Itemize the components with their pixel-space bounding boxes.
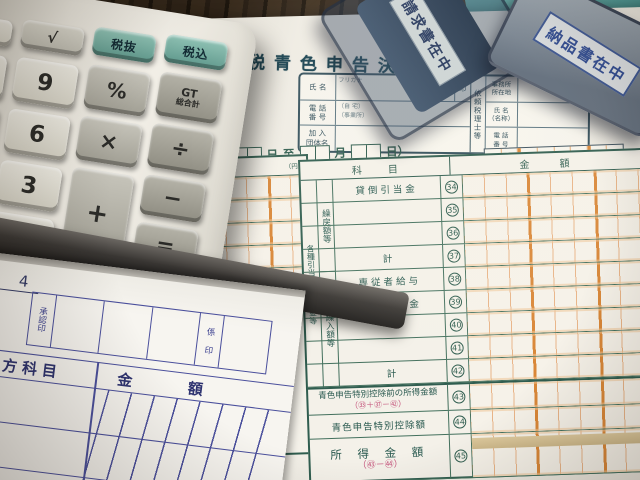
amount-grid bbox=[472, 427, 640, 477]
row-formula: （㊸－㊹） bbox=[358, 459, 403, 471]
row-number-cell: 38 bbox=[444, 267, 467, 290]
row-label bbox=[334, 222, 443, 248]
circled-number: 41 bbox=[450, 341, 463, 354]
row-number-cell: 35 bbox=[441, 198, 464, 221]
row-number-cell: 37 bbox=[443, 244, 466, 267]
row-number-cell: 45 bbox=[450, 434, 473, 478]
circled-number: 39 bbox=[449, 295, 462, 308]
row-label: 貸倒引当金 bbox=[333, 176, 442, 202]
circled-number: 40 bbox=[450, 318, 463, 331]
circled-number: 37 bbox=[447, 249, 460, 262]
circled-number: 42 bbox=[451, 364, 464, 377]
circled-number: 45 bbox=[454, 449, 467, 462]
row-number-cell: 34 bbox=[441, 175, 464, 198]
agent-name-label: 氏 名 （名称） bbox=[486, 102, 518, 127]
invoice-stamp-label: 請求書在中 bbox=[389, 0, 466, 86]
calc-key-tax-included: 税込 bbox=[163, 34, 229, 71]
seal-cell bbox=[51, 295, 105, 352]
voucher-number: 3 4 bbox=[0, 268, 40, 294]
circled-number: 35 bbox=[446, 203, 459, 216]
seal-cell bbox=[147, 307, 201, 364]
row-label: 青色申告特別控除前の所得金額 （㉝＋㊲－㊷） bbox=[308, 385, 449, 415]
circled-number: 43 bbox=[452, 390, 465, 403]
name-label: 氏 名 bbox=[300, 74, 336, 99]
row-label: 計 bbox=[335, 245, 444, 271]
row-label: 所 得 金 額 （㊸－㊹） bbox=[310, 435, 451, 480]
seal-cell bbox=[99, 301, 153, 358]
row-number-cell: 43 bbox=[448, 384, 471, 410]
row-number-cell: 40 bbox=[445, 313, 468, 336]
gt-sub-label: 総合計 bbox=[175, 98, 200, 110]
calc-key-divide: ÷ bbox=[146, 123, 214, 176]
circled-number: 36 bbox=[446, 226, 459, 239]
voucher-slip: 3 4 承認印 係 印 貸方科目 金額 bbox=[0, 251, 306, 480]
row-label: 計 bbox=[339, 360, 448, 386]
tan-band bbox=[472, 431, 640, 449]
row-label bbox=[334, 199, 443, 225]
row-number-cell: 36 bbox=[442, 221, 465, 244]
row-number-cell: 42 bbox=[447, 359, 470, 382]
row-formula: （㉝＋㊲－㊷） bbox=[350, 399, 406, 410]
phone-label: 電 話 番 号 bbox=[300, 100, 336, 125]
calc-key-3: 3 bbox=[0, 159, 63, 212]
circled-number: 44 bbox=[453, 415, 466, 428]
calc-key-multiply: × bbox=[75, 115, 143, 168]
agent-name-row: 氏 名 （名称） bbox=[485, 102, 588, 129]
calc-key-minus: − bbox=[139, 174, 206, 223]
seal-cell bbox=[218, 316, 271, 373]
desk-photo: 所得税青色申告決算書 氏 名 フリガナ 印 電 話 番 号 （自 宅） （事業所… bbox=[0, 0, 640, 480]
row-number-cell: 39 bbox=[445, 290, 468, 313]
row-number-cell: 41 bbox=[446, 336, 469, 359]
calc-key-sqrt: √ bbox=[20, 19, 86, 56]
calc-key-8: 8 bbox=[0, 50, 8, 100]
row-label bbox=[338, 337, 447, 363]
circled-number: 38 bbox=[448, 272, 461, 285]
row-number-cell: 44 bbox=[449, 410, 472, 434]
calc-key-grand-total: GT 総合計 bbox=[155, 71, 223, 124]
calc-key-9: 9 bbox=[11, 57, 79, 110]
calc-key-percent: % bbox=[83, 64, 151, 117]
delivery-stamp-label: 納品書在中 bbox=[532, 11, 640, 97]
calc-key-6: 6 bbox=[3, 108, 71, 161]
circled-number: 34 bbox=[445, 180, 458, 193]
calc-key-tax-excluded: 税抜 bbox=[91, 26, 157, 63]
calc-key-arrow: → bbox=[0, 15, 13, 47]
